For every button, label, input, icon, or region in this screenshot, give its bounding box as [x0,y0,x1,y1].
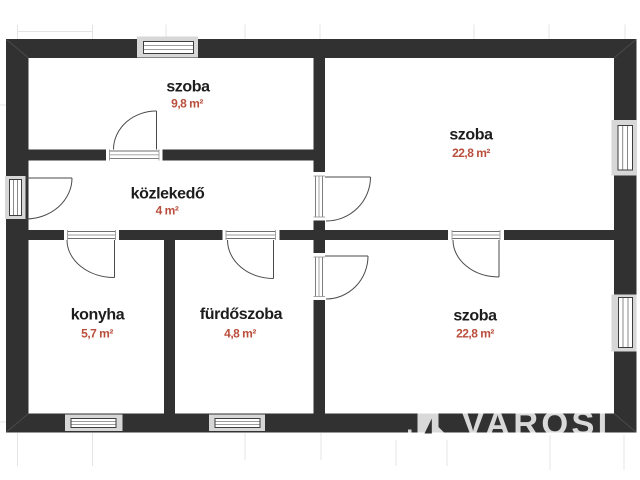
svg-text:22,8 m²: 22,8 m² [456,327,494,341]
svg-text:9,8 m²: 9,8 m² [171,97,203,111]
svg-text:szoba: szoba [449,127,493,144]
svg-text:5,7 m²: 5,7 m² [81,327,113,341]
svg-text:22,8 m²: 22,8 m² [452,146,490,160]
svg-text:4 m²: 4 m² [156,204,179,218]
svg-text:VAROSI: VAROSI [462,405,611,443]
svg-text:4,8 m²: 4,8 m² [224,327,256,341]
svg-text:szoba: szoba [166,79,210,96]
svg-text:konyha: konyha [71,307,125,324]
svg-text:szoba: szoba [453,308,497,325]
svg-text:közlekedő: közlekedő [131,186,205,203]
svg-text:fürdőszoba: fürdőszoba [200,306,283,323]
